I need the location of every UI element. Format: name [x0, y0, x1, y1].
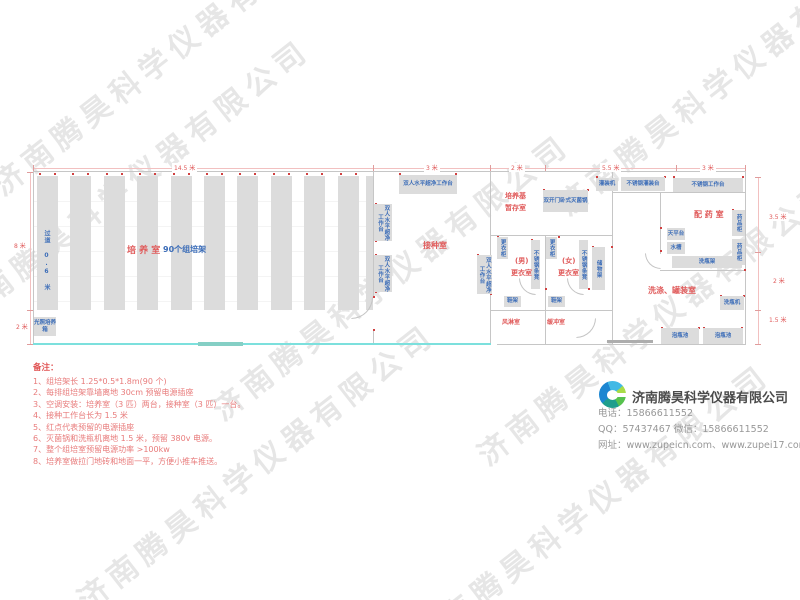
wall	[612, 171, 613, 345]
power-outlet-dot	[355, 173, 357, 175]
wall	[660, 192, 661, 254]
room-label: 风淋室	[502, 317, 520, 326]
power-outlet-dot	[273, 173, 275, 175]
power-outlet-dot	[121, 173, 123, 175]
power-outlet-dot	[373, 329, 375, 331]
equipment-box: 灌装机	[596, 178, 618, 191]
equipment-box: 天平台	[667, 228, 685, 240]
equipment-box: 泡瓶池	[703, 328, 743, 344]
power-outlet-dot	[660, 250, 662, 252]
power-outlet-dot	[139, 173, 141, 175]
culture-rack-bar	[271, 176, 292, 310]
dimension-label: 8 米	[12, 241, 28, 250]
door-arc	[576, 318, 596, 338]
power-outlet-dot	[239, 173, 241, 175]
culture-rack-bar	[70, 176, 91, 310]
power-outlet-dot	[588, 288, 590, 290]
dim-tick	[27, 172, 33, 173]
dim-tick	[545, 165, 546, 171]
power-outlet-dot	[221, 173, 223, 175]
equipment-box: 双人水平超净工作台	[374, 255, 392, 292]
equipment-box: 储物架	[592, 247, 605, 290]
floor-plan-drawing: 14.5 米3 米2 米5.5 米3 米8 米2 米3.5 米2 米1.5 米双…	[0, 0, 800, 600]
dim-tick	[755, 252, 761, 253]
dimension-label: 2 米	[771, 276, 787, 285]
note-item: 1、组培架长 1.25*0.5*1.8m(90 个)	[33, 376, 245, 387]
equipment-box: 泡瓶池	[661, 328, 699, 344]
equipment-box: 更衣柜	[497, 237, 508, 259]
equipment-box: 光照培养箱	[34, 317, 56, 336]
power-outlet-dot	[288, 173, 290, 175]
wall	[490, 235, 612, 236]
room-label: 培 养 室	[127, 243, 160, 256]
room-label: 培养基	[505, 191, 526, 201]
room-label: 暂存室	[505, 203, 526, 213]
power-outlet-dot	[188, 173, 190, 175]
dim-tick	[27, 310, 33, 311]
room-label: 90个组培架	[163, 244, 206, 255]
dim-tick	[33, 165, 34, 171]
wall	[497, 344, 746, 345]
note-item: 4、接种工作台长为 1.5 米	[33, 410, 245, 421]
dimension-label: 3 米	[424, 163, 440, 172]
room-label: 配 药 室	[694, 209, 724, 220]
culture-rack-bar	[237, 176, 258, 310]
company-name: 济南腾昊科学仪器有限公司	[632, 387, 788, 406]
dim-line	[30, 172, 31, 345]
note-item: 7、整个组培室预留电源功率 >100kw	[33, 444, 245, 455]
note-item: 3、空调安装：培养室（3 匹）两台，接种室（3 匹）一台。	[33, 399, 245, 410]
equipment-box: 鞋架	[504, 296, 521, 307]
dim-line	[33, 168, 745, 169]
company-qq-wechat: QQ：57437467 微信：15866611552	[598, 422, 800, 438]
door-arc	[567, 278, 584, 295]
company-contact-lines: 电话：15866611552 QQ：57437467 微信：1586661155…	[598, 406, 800, 454]
power-outlet-dot	[321, 173, 323, 175]
dim-line	[758, 177, 759, 345]
sliding-door	[198, 342, 243, 346]
entrance-door	[607, 340, 653, 343]
door-arc	[645, 253, 661, 269]
room-label: (男)	[515, 256, 528, 266]
dim-tick	[755, 177, 761, 178]
power-outlet-dot	[611, 246, 613, 248]
equipment-box: 双人水平超净工作台	[477, 255, 492, 294]
equipment-box: 双人水平超净工作台	[399, 175, 457, 194]
room-label: 洗涤、罐装室	[648, 285, 696, 296]
equipment-box: 药品柜	[732, 210, 745, 236]
dimension-label: 5.5 米	[600, 163, 621, 172]
culture-rack-bar	[338, 176, 359, 310]
dim-tick	[745, 165, 746, 171]
door-arc	[351, 297, 373, 319]
dimension-label: 14.5 米	[172, 163, 197, 172]
note-item: 6、灭菌锅和洗瓶机离地 1.5 米，预留 380v 电源。	[33, 433, 245, 444]
room-label: 更衣室	[511, 268, 532, 278]
power-outlet-dot	[254, 173, 256, 175]
power-outlet-dot	[373, 296, 375, 298]
wall	[612, 192, 745, 193]
power-outlet-dot	[660, 227, 662, 229]
culture-rack-bar	[366, 176, 373, 310]
equipment-box: 水槽	[667, 242, 685, 254]
wall	[745, 171, 746, 345]
power-outlet-dot	[206, 173, 208, 175]
wall	[660, 270, 745, 271]
glass-wall	[33, 343, 491, 345]
note-item: 8、培养室做拉门地砖和地面一平，方便小推车推送。	[33, 456, 245, 467]
culture-rack-bar	[171, 176, 192, 310]
dim-tick	[755, 344, 761, 345]
room-label: 接种室	[423, 240, 447, 251]
company-block: 济南腾昊科学仪器有限公司 电话：15866611552 QQ：57437467 …	[596, 380, 800, 450]
room-label: 过道 0.6 米	[42, 230, 51, 291]
dim-tick	[490, 165, 491, 171]
room-label: 缓冲室	[547, 317, 565, 326]
dimension-label: 1.5 米	[767, 315, 788, 324]
equipment-box: 双开门卧式灭菌锅	[543, 190, 588, 212]
culture-rack-bar	[104, 176, 125, 310]
room-label: 更衣室	[558, 268, 579, 278]
notes-list: 1、组培架长 1.25*0.5*1.8m(90 个)2、每排组培架靠墙离地 30…	[33, 376, 245, 467]
wall	[33, 171, 746, 172]
power-outlet-dot	[154, 173, 156, 175]
equipment-box: 药品柜	[732, 239, 745, 265]
power-outlet-dot	[39, 173, 41, 175]
equipment-box: 双人水平超净工作台	[374, 204, 392, 241]
company-website: 网址：www.zupeicn.com、www.zupei17.com	[598, 438, 800, 454]
power-outlet-dot	[87, 173, 89, 175]
culture-rack-bar	[204, 176, 225, 310]
equipment-box: 不锈钢工作台	[673, 178, 743, 192]
equipment-box: 更衣柜	[546, 237, 557, 259]
equipment-box: 不锈钢灌装台	[621, 177, 665, 191]
equipment-box: 洗瓶机	[720, 296, 744, 310]
note-item: 5、红点代表预留的电源插座	[33, 422, 245, 433]
company-logo-icon	[599, 381, 626, 408]
notes-title: 备注：	[33, 361, 245, 373]
dimension-label: 3 米	[700, 163, 716, 172]
power-outlet-dot	[545, 288, 547, 290]
dim-tick	[755, 310, 761, 311]
floorplan-canvas: 济南腾昊科学仪器有限公司济南腾昊科学仪器有限公司济南腾昊科学仪器有限公司济南腾昊…	[0, 0, 800, 600]
note-item: 2、每排组培架靠墙离地 30cm 预留电源插座	[33, 387, 245, 398]
logo-notch	[615, 393, 626, 397]
door-arc	[519, 278, 536, 295]
power-outlet-dot	[72, 173, 74, 175]
company-phone: 电话：15866611552	[598, 406, 800, 422]
wall	[490, 310, 612, 311]
dimension-label: 2 米	[14, 322, 30, 331]
dimension-label: 3.5 米	[767, 212, 788, 221]
power-outlet-dot	[306, 173, 308, 175]
power-outlet-dot	[744, 269, 746, 271]
dim-tick	[676, 165, 677, 171]
notes-section: 备注： 1、组培架长 1.25*0.5*1.8m(90 个)2、每排组培架靠墙离…	[33, 361, 245, 467]
power-outlet-dot	[54, 173, 56, 175]
power-outlet-dot	[173, 173, 175, 175]
dimension-label: 2 米	[509, 163, 525, 172]
culture-rack-bar	[304, 176, 325, 310]
dim-tick	[373, 165, 374, 171]
room-label: (女)	[562, 256, 575, 266]
power-outlet-dot	[106, 173, 108, 175]
power-outlet-dot	[340, 173, 342, 175]
equipment-box: 鞋架	[548, 296, 565, 307]
power-outlet-dot	[558, 236, 560, 238]
